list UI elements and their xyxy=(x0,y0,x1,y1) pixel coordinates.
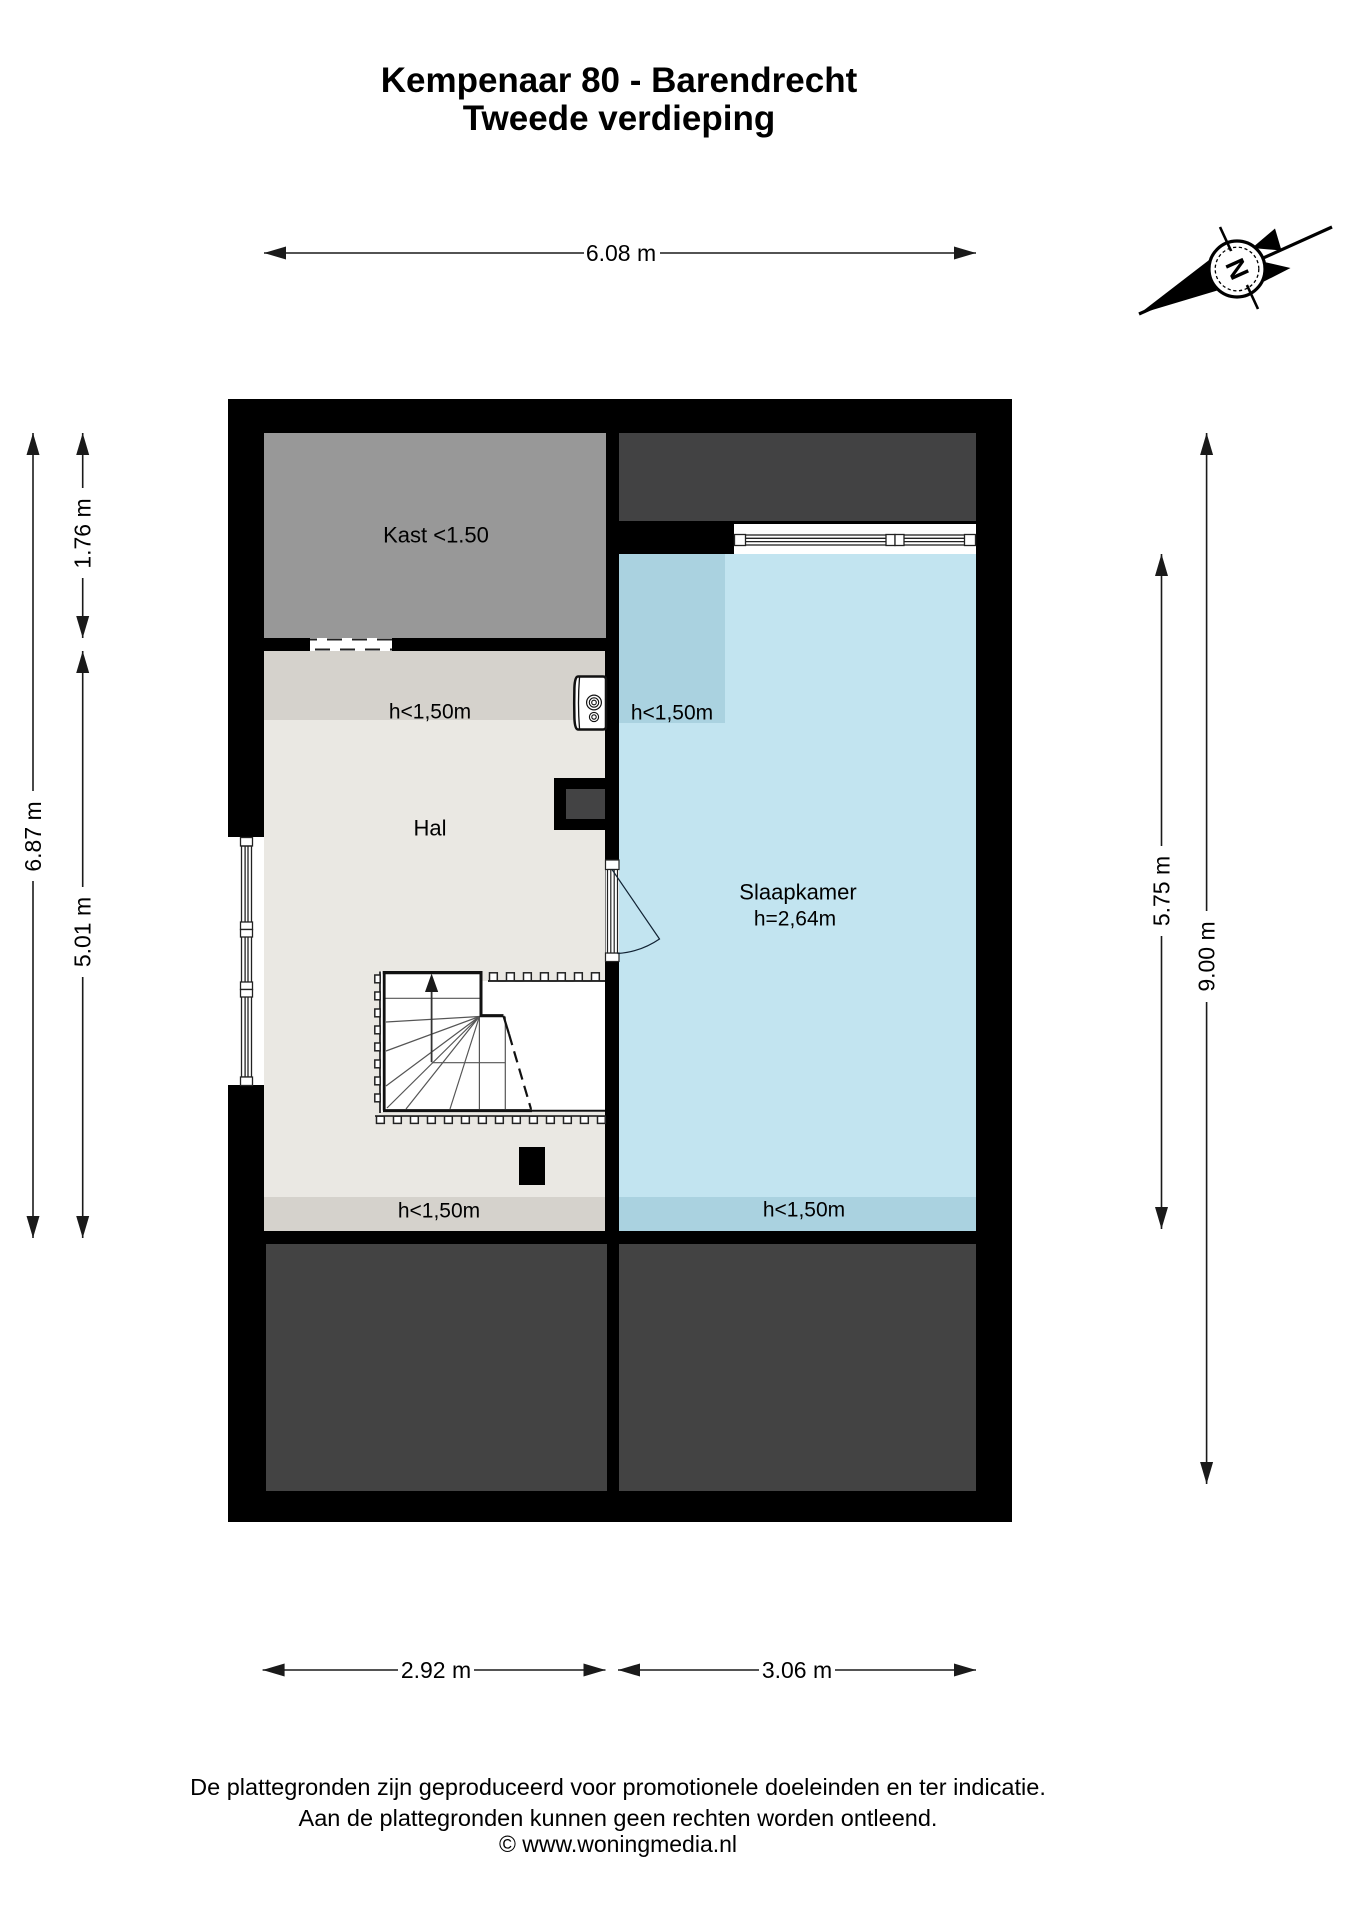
svg-text:Slaapkamer: Slaapkamer xyxy=(739,880,856,905)
svg-text:2.92 m: 2.92 m xyxy=(401,1657,471,1683)
svg-text:h<1,50m: h<1,50m xyxy=(398,1200,480,1223)
svg-text:5.01 m: 5.01 m xyxy=(70,897,96,967)
svg-text:6.87 m: 6.87 m xyxy=(20,801,46,871)
svg-text:h<1,50m: h<1,50m xyxy=(389,701,471,724)
svg-text:h<1,50m: h<1,50m xyxy=(631,702,713,725)
svg-text:3.06 m: 3.06 m xyxy=(762,1657,832,1683)
svg-text:h=2,64m: h=2,64m xyxy=(754,908,836,931)
svg-text:9.00 m: 9.00 m xyxy=(1194,921,1220,991)
svg-text:5.75 m: 5.75 m xyxy=(1149,856,1175,926)
svg-text:Kast <1.50: Kast <1.50 xyxy=(383,523,489,548)
svg-text:1.76 m: 1.76 m xyxy=(70,498,96,568)
svg-text:Hal: Hal xyxy=(413,816,446,841)
svg-text:De plattegronden zijn geproduc: De plattegronden zijn geproduceerd voor … xyxy=(190,1774,1046,1800)
svg-text:Tweede verdieping: Tweede verdieping xyxy=(463,99,776,138)
svg-text:© www.woningmedia.nl: © www.woningmedia.nl xyxy=(499,1831,737,1857)
svg-text:6.08 m: 6.08 m xyxy=(586,240,656,266)
svg-text:h<1,50m: h<1,50m xyxy=(763,1199,845,1222)
svg-text:Aan de plattegronden kunnen ge: Aan de plattegronden kunnen geen rechten… xyxy=(299,1805,938,1831)
svg-text:Kempenaar 80 - Barendrecht: Kempenaar 80 - Barendrecht xyxy=(381,61,858,100)
